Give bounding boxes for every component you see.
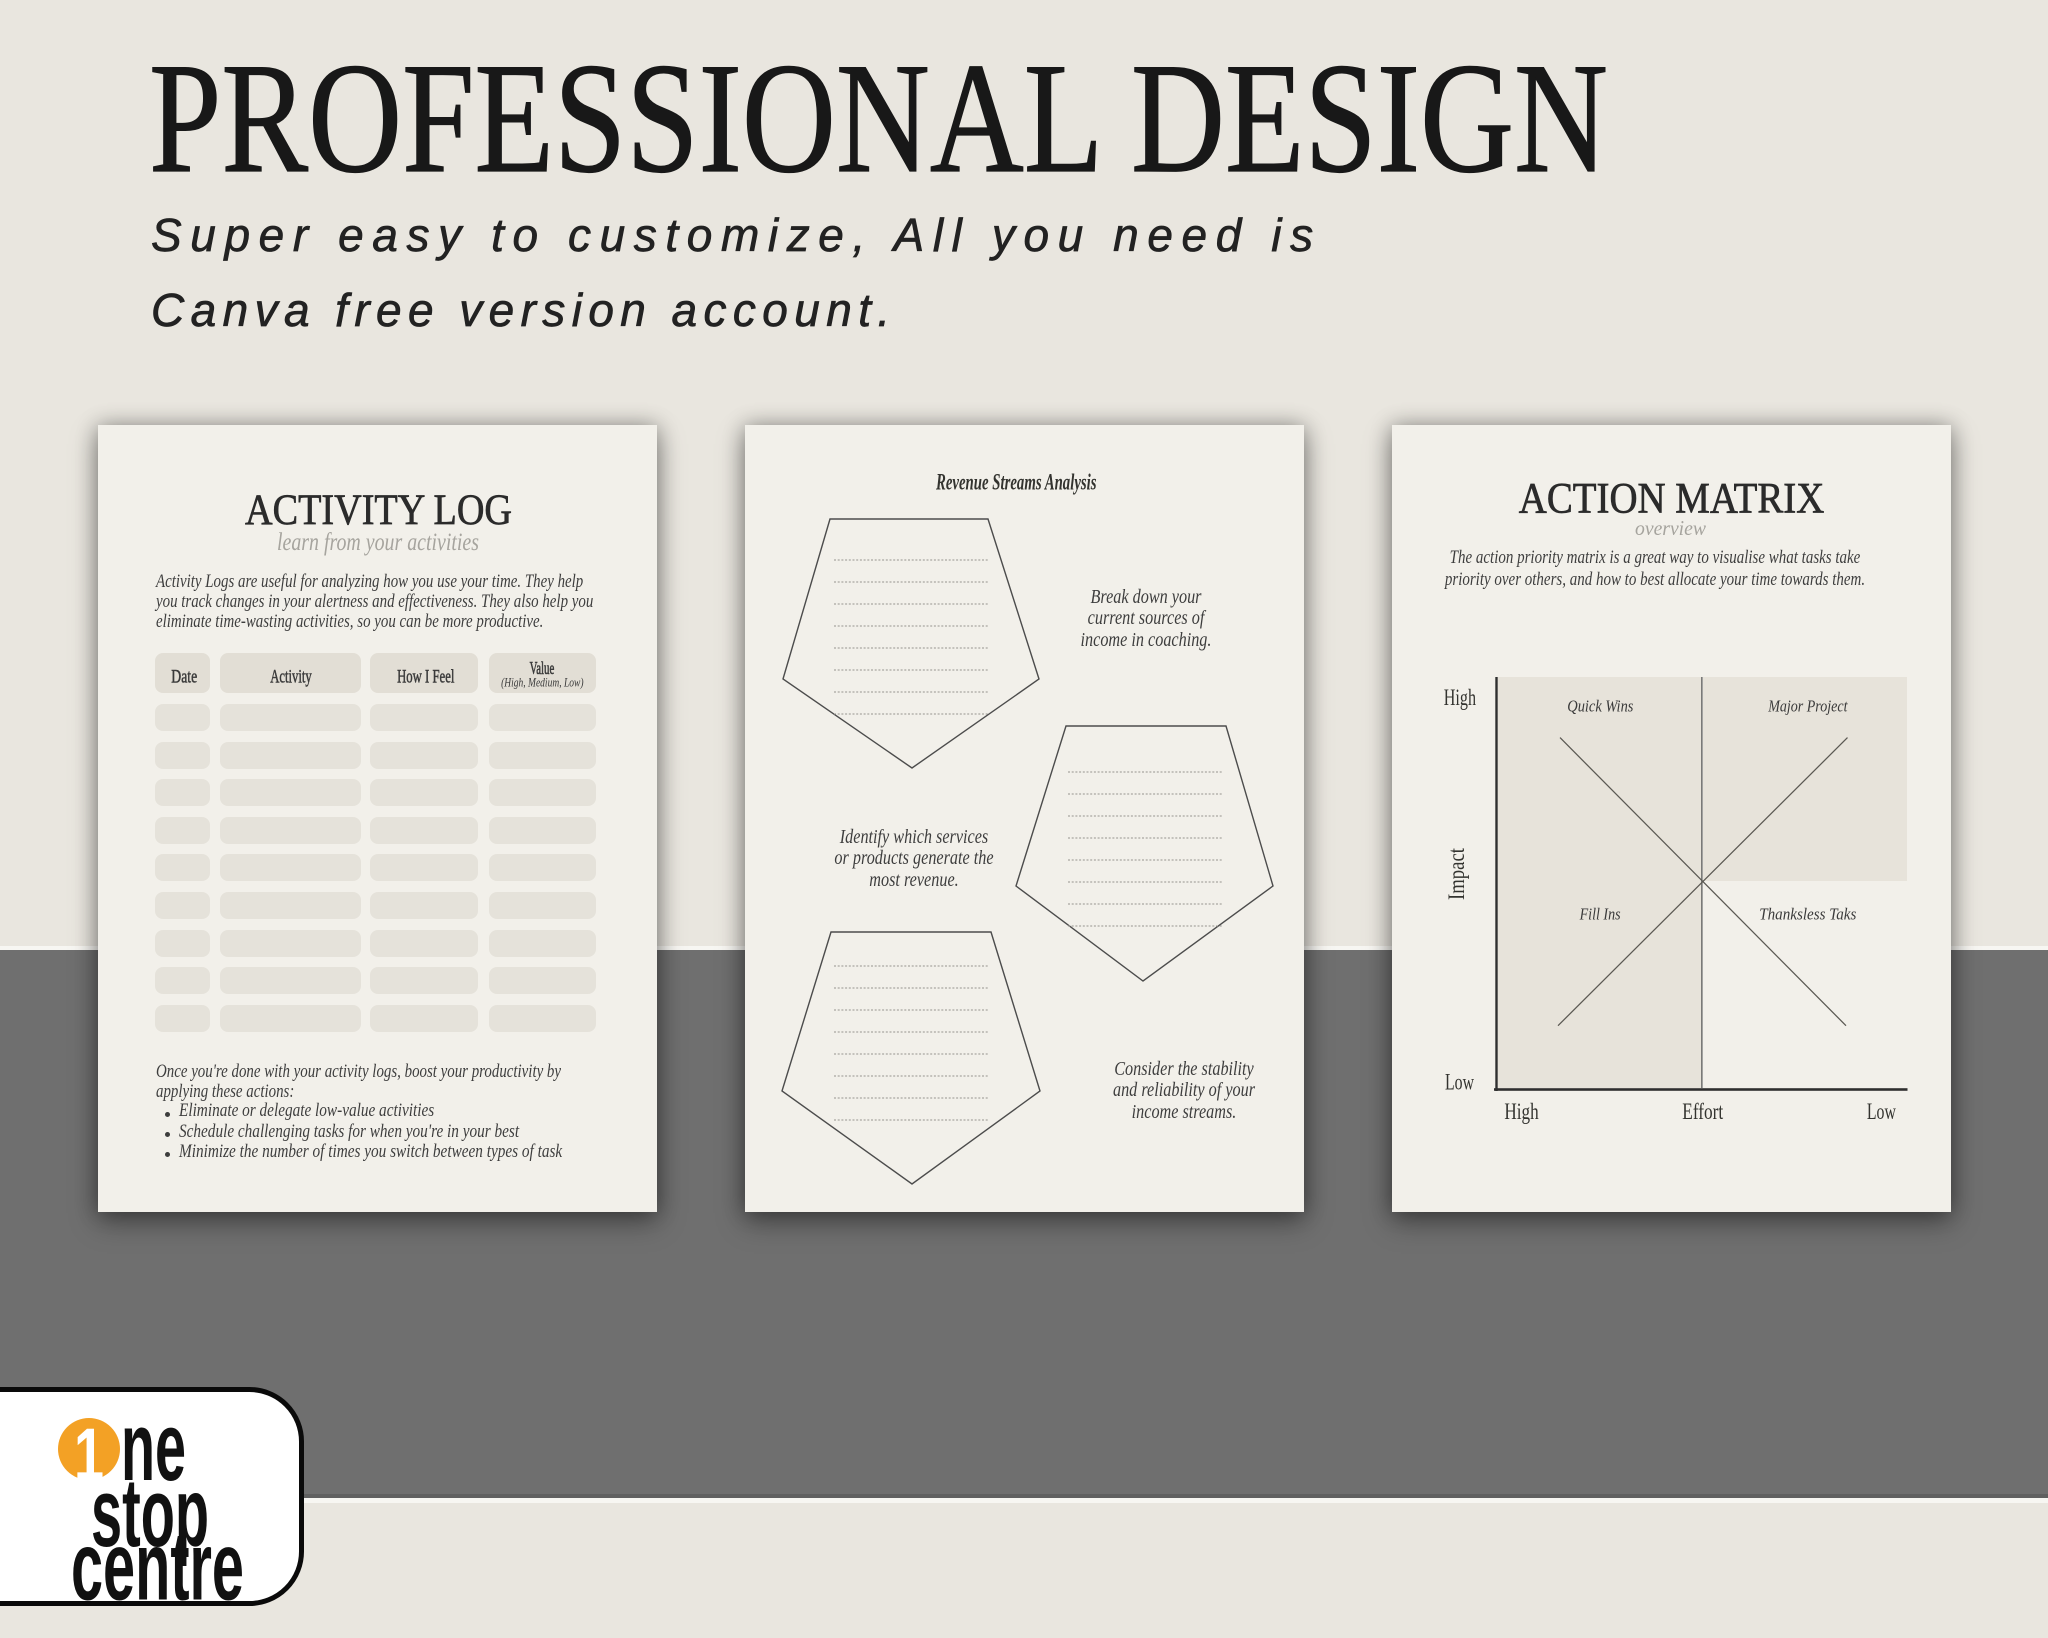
svg-text:Low: Low	[1445, 1070, 1474, 1095]
svg-text:Major Project: Major Project	[1767, 697, 1848, 716]
svg-text:How I Feel: How I Feel	[397, 668, 454, 688]
svg-text:Low: Low	[1867, 1099, 1896, 1124]
svg-text:Impact: Impact	[1444, 848, 1469, 900]
svg-text:Date: Date	[171, 668, 197, 688]
svg-text:Fill Ins: Fill Ins	[1579, 905, 1621, 924]
svg-text:centre: centre	[71, 1513, 244, 1609]
svg-text:overview: overview	[1635, 516, 1706, 540]
svg-text:Quick Wins: Quick Wins	[1567, 697, 1633, 716]
svg-text:(High, Medium, Low): (High, Medium, Low)	[501, 676, 583, 690]
svg-text:High: High	[1504, 1099, 1539, 1124]
svg-text:PROFESSIONAL DESIGN: PROFESSIONAL DESIGN	[149, 31, 1608, 206]
svg-text:Thanksless Taks: Thanksless Taks	[1759, 905, 1857, 924]
svg-text:Effort: Effort	[1682, 1099, 1723, 1124]
svg-text:High: High	[1444, 685, 1477, 710]
svg-text:Activity: Activity	[270, 668, 312, 688]
